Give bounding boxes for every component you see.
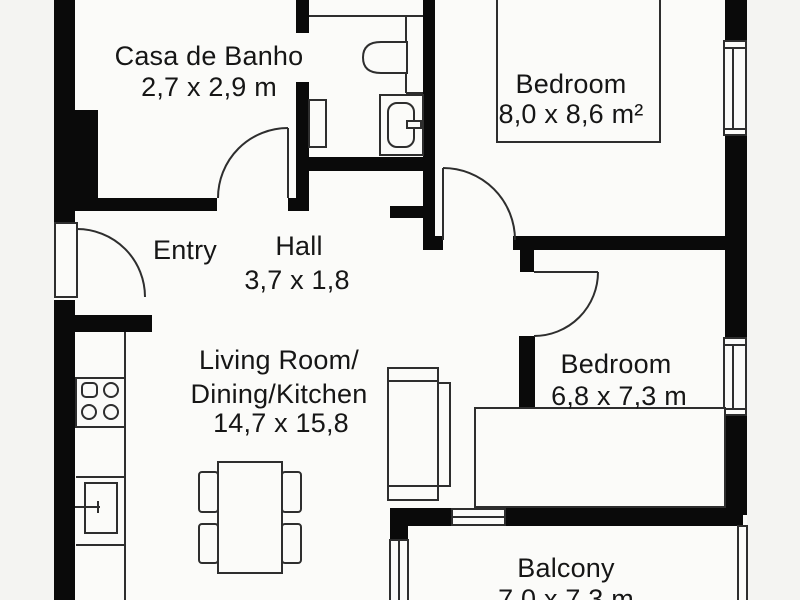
wall-right-bottom: [725, 415, 747, 515]
bedroom1-label: Bedroom: [516, 70, 627, 100]
chair: [199, 472, 218, 512]
stove-burner: [104, 383, 118, 397]
wall-bedroom1-door-jamb: [423, 236, 443, 250]
wall-bedroom-divider: [513, 236, 725, 250]
wall-balcony-left-seg: [390, 508, 452, 526]
wall-left-bottom: [54, 300, 75, 600]
wall-left-top: [54, 0, 75, 222]
bathroom-label: Casa de Banho: [115, 42, 304, 72]
wall-wc-bottom: [296, 157, 435, 171]
floor-plan-drawing: [0, 0, 800, 600]
bedroom1-window-frame: [724, 41, 746, 135]
sofa: [388, 368, 450, 500]
living-room-dimensions: 14,7 x 15,8: [213, 409, 349, 439]
wall-bath-wc-divider: [296, 82, 309, 211]
sofa-seat: [388, 381, 438, 486]
bathroom-dimensions: 2,7 x 2,9 m: [141, 73, 277, 103]
hall-dimensions: 3,7 x 1,8: [244, 266, 349, 296]
dining-table: [218, 462, 282, 573]
wc-radiator: [309, 100, 326, 147]
stove-burner: [82, 405, 96, 419]
balcony-right-window-frame: [738, 526, 747, 600]
wall-balcony-right-seg: [505, 508, 743, 526]
balcony-left-window: [390, 540, 408, 600]
stove-burner: [104, 405, 118, 419]
floor-plan: Casa de Banho 2,7 x 2,9 m Bedroom 8,0 x …: [0, 0, 800, 600]
toilet: [363, 42, 407, 73]
balcony-label: Balcony: [517, 554, 614, 584]
bedroom2-window-frame: [724, 338, 746, 415]
living-room-label-line1: Living Room/: [199, 346, 359, 376]
wall-right-top: [725, 0, 747, 41]
hall-label: Hall: [275, 232, 322, 262]
bedroom2-window: [724, 338, 746, 415]
sofa-armrest: [388, 368, 438, 381]
wall-right-middle: [725, 135, 747, 338]
bedroom1-dimensions: 8,0 x 8,6 m²: [499, 100, 644, 130]
wall-left-pilaster: [75, 110, 98, 198]
bedroom1-window: [724, 41, 746, 135]
living-room-label-line2: Dining/Kitchen: [191, 380, 368, 410]
wall-hall-alcove-stub: [390, 206, 435, 218]
chair: [282, 524, 301, 563]
sofa-armrest: [388, 486, 438, 500]
balcony-wall-window: [452, 509, 505, 525]
balcony-dimensions: 7,0 x 7,3 m: [498, 585, 634, 600]
wall-bathroom-bottom: [54, 198, 217, 211]
entry-label: Entry: [153, 236, 217, 266]
wall-kitchen-stub: [54, 315, 152, 332]
chair: [199, 524, 218, 563]
bedroom2-label: Bedroom: [561, 350, 672, 380]
stove-burner: [82, 383, 97, 397]
bedroom2-dimensions: 6,8 x 7,3 m: [551, 382, 687, 412]
bed-bedroom2: [475, 408, 725, 507]
wall-bath-wc-divider-top: [296, 0, 309, 33]
chair: [282, 472, 301, 512]
wc-sink-tap: [407, 121, 421, 128]
entry-door-leaf: [55, 223, 77, 297]
wall-bedroom2-left-stub: [520, 249, 534, 272]
wall-balcony-corner-stub: [390, 526, 408, 540]
